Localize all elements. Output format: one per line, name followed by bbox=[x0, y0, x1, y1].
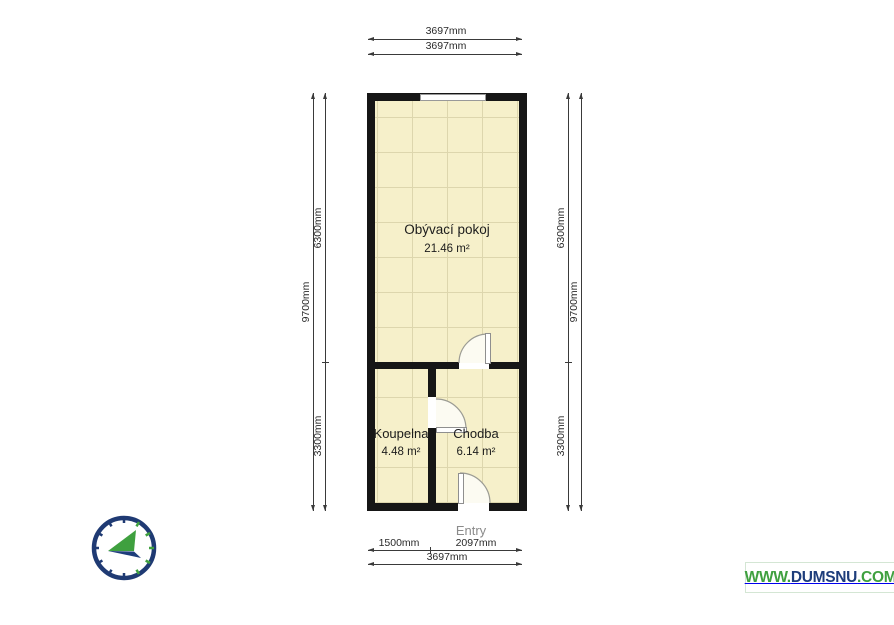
wall-right bbox=[519, 93, 527, 511]
wall-left bbox=[367, 93, 375, 511]
dim-line-left-inner bbox=[325, 93, 326, 511]
wall-divider-horizontal bbox=[367, 362, 527, 369]
dim-line-top-2 bbox=[368, 54, 522, 55]
dim-left-total: 9700mm bbox=[300, 282, 312, 323]
dim-top-1: 3697mm bbox=[426, 25, 467, 37]
window-top bbox=[420, 94, 486, 101]
wall-bottom bbox=[367, 503, 527, 511]
room-name-bathroom: Koupelna bbox=[374, 426, 429, 441]
dim-left-lower: 3300mm bbox=[312, 416, 324, 457]
room-name-hallway: Chodba bbox=[453, 426, 499, 441]
entry-label: Entry bbox=[456, 523, 486, 538]
watermark-name: DUMSNU bbox=[791, 569, 857, 587]
dim-left-upper: 6300mm bbox=[312, 208, 324, 249]
dim-bottom-left: 1500mm bbox=[379, 537, 420, 549]
door-opening-bathroom bbox=[428, 397, 436, 428]
dim-bottom-total: 3697mm bbox=[427, 551, 468, 563]
dim-tick-left bbox=[322, 362, 329, 363]
dim-tick-right bbox=[565, 362, 572, 363]
room-area-living: 21.46 m² bbox=[424, 243, 469, 255]
compass-icon bbox=[89, 513, 159, 583]
door-leaf-living bbox=[485, 333, 491, 364]
dim-right-upper: 6300mm bbox=[555, 208, 567, 249]
dim-bottom-right: 2097mm bbox=[456, 537, 497, 549]
dim-line-right-outer bbox=[581, 93, 582, 511]
watermark-prefix: WWW. bbox=[745, 569, 791, 587]
dim-right-total: 9700mm bbox=[568, 282, 580, 323]
dim-top-2: 3697mm bbox=[426, 40, 467, 52]
watermark-suffix: .COM bbox=[857, 569, 894, 587]
dim-line-bottom-2 bbox=[368, 564, 522, 565]
wall-interior-vertical bbox=[428, 369, 436, 503]
dim-right-lower: 3300mm bbox=[555, 416, 567, 457]
room-name-living: Obývací pokoj bbox=[404, 222, 490, 237]
room-area-bathroom: 4.48 m² bbox=[382, 446, 421, 458]
room-area-hallway: 6.14 m² bbox=[457, 446, 496, 458]
floorplan-page: Obývací pokoj 21.46 m² Koupelna 4.48 m² … bbox=[0, 0, 894, 625]
door-opening-entry bbox=[458, 503, 489, 511]
watermark-link[interactable]: WWW.DUMSNU.COM bbox=[745, 562, 894, 593]
door-leaf-entry bbox=[458, 473, 464, 504]
